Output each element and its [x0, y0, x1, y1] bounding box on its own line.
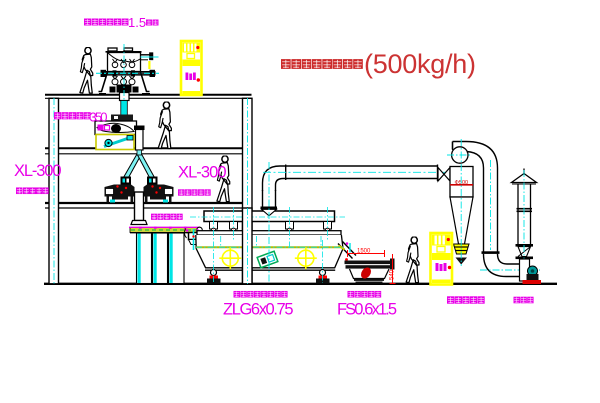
svg-text:540: 540: [390, 269, 396, 280]
svg-text:FS0.6x1.5: FS0.6x1.5: [337, 301, 397, 319]
svg-text:(500kg/h): (500kg/h): [364, 49, 476, 79]
svg-text:XL-300: XL-300: [178, 164, 227, 182]
svg-text:ZLG6x0.75: ZLG6x0.75: [223, 301, 294, 319]
svg-text:XL-300: XL-300: [14, 162, 62, 180]
svg-text:1500: 1500: [357, 249, 371, 255]
svg-text:1.5: 1.5: [128, 15, 146, 30]
svg-text:350: 350: [90, 110, 108, 125]
